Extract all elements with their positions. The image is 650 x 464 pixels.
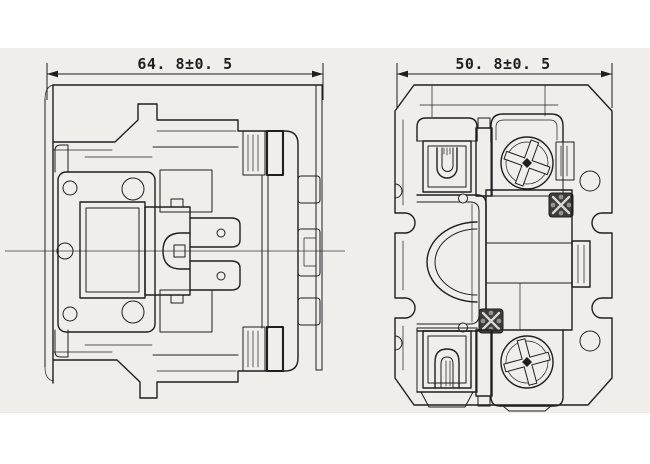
technical-drawing: 64. 8±0. 5	[0, 0, 650, 464]
pivot-pin	[459, 194, 468, 203]
small-phillips-screw-icon	[549, 193, 573, 217]
side-width-dimension-label: 50. 8±0. 5	[455, 55, 550, 73]
front-width-dimension-label: 64. 8±0. 5	[137, 55, 232, 73]
